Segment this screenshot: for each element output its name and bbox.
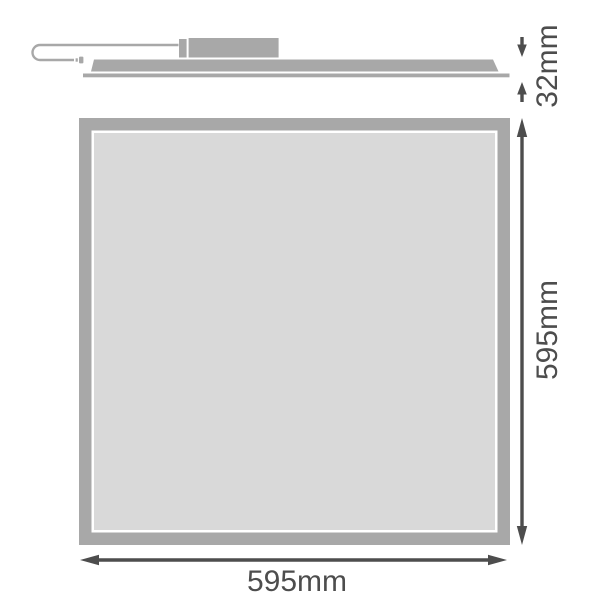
- depth-arrow-up-icon: [517, 82, 527, 95]
- power-cable: [33, 45, 179, 60]
- depth-arrow-down-icon: [517, 45, 527, 58]
- height-arrow-up-icon: [517, 118, 527, 137]
- panel-face: [94, 133, 495, 530]
- depth-dimension: 32mm: [517, 24, 564, 107]
- width-arrow-left-icon: [80, 555, 99, 565]
- dimension-drawing-canvas: 32mm 595mm 595mm: [0, 0, 600, 600]
- height-dimension-label: 595mm: [531, 280, 564, 380]
- cable-connector-dot: [76, 58, 78, 61]
- height-dimension: 595mm: [517, 118, 564, 545]
- driver-endcap: [179, 39, 187, 58]
- panel-profile-body: [91, 60, 499, 72]
- dimension-drawing: 32mm 595mm 595mm: [0, 0, 600, 600]
- panel-profile-flange: [83, 74, 510, 78]
- width-arrow-right-icon: [488, 555, 507, 565]
- width-dimension-label: 595mm: [247, 565, 347, 598]
- driver-box: [189, 38, 279, 58]
- cable-connector-plug: [79, 57, 83, 64]
- side-view: 32mm: [33, 24, 564, 107]
- width-dimension: 595mm: [80, 555, 507, 598]
- depth-dimension-label: 32mm: [531, 24, 564, 107]
- front-view: 595mm 595mm: [79, 118, 564, 598]
- height-arrow-down-icon: [517, 526, 527, 545]
